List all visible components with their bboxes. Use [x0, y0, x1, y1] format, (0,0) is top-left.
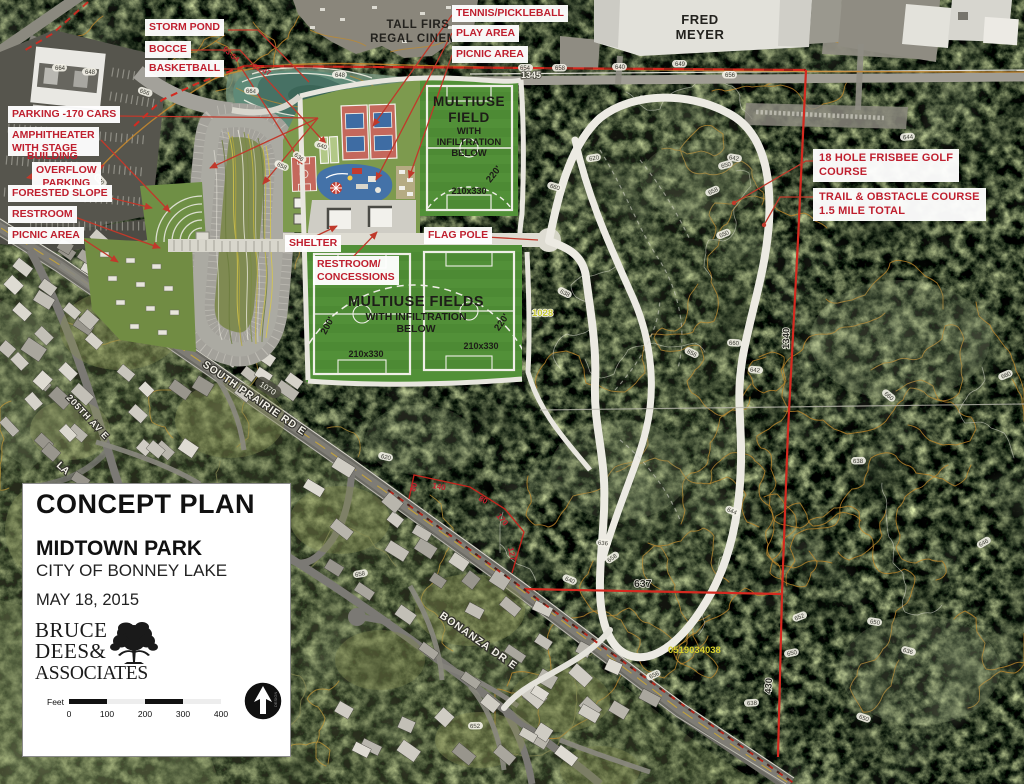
svg-text:636: 636 [598, 541, 609, 548]
svg-text:WITH: WITH [457, 126, 481, 137]
svg-text:200: 200 [138, 709, 152, 719]
svg-text:DESIGN: DESIGN [273, 692, 278, 707]
svg-text:MULTIUSE: MULTIUSE [433, 94, 505, 109]
svg-text:210x330: 210x330 [348, 349, 383, 359]
svg-text:640: 640 [615, 65, 626, 71]
svg-text:ASSOCIATES: ASSOCIATES [35, 663, 148, 684]
svg-text:664: 664 [246, 89, 257, 96]
svg-text:1028: 1028 [532, 308, 553, 319]
svg-text:637: 637 [634, 578, 652, 590]
svg-text:644: 644 [903, 135, 914, 142]
svg-text:BELOW: BELOW [396, 323, 435, 335]
svg-text:MEYER: MEYER [676, 27, 725, 42]
svg-text:MULTIUSE FIELDS: MULTIUSE FIELDS [348, 294, 484, 310]
svg-text:210x330: 210x330 [463, 341, 498, 351]
svg-text:1345: 1345 [521, 70, 541, 80]
svg-text:DEES&: DEES& [35, 639, 106, 663]
svg-text:642: 642 [750, 368, 761, 375]
svg-text:TALL FIRS: TALL FIRS [386, 19, 449, 31]
svg-text:648: 648 [85, 70, 96, 76]
svg-text:664: 664 [55, 66, 66, 72]
svg-text:648: 648 [335, 73, 346, 79]
svg-text:400: 400 [214, 709, 228, 719]
svg-text:0519034038: 0519034038 [668, 645, 721, 656]
svg-text:FRED: FRED [681, 12, 718, 27]
svg-text:652: 652 [470, 724, 481, 730]
svg-text:1340: 1340 [781, 328, 792, 349]
svg-text:BELOW: BELOW [451, 148, 486, 159]
svg-text:658: 658 [555, 66, 566, 72]
svg-text:INFILTRATION: INFILTRATION [437, 137, 502, 148]
svg-text:638: 638 [853, 459, 864, 465]
svg-text:0: 0 [67, 709, 72, 719]
svg-text:FIELD: FIELD [448, 110, 490, 125]
svg-text:638: 638 [747, 701, 758, 708]
svg-text:649: 649 [675, 62, 686, 68]
svg-text:WITH INFILTRATION: WITH INFILTRATION [365, 311, 466, 323]
svg-text:300: 300 [176, 709, 190, 719]
svg-text:Feet: Feet [47, 697, 65, 707]
svg-text:430: 430 [763, 678, 775, 695]
svg-text:656: 656 [725, 73, 736, 79]
svg-text:210x330: 210x330 [451, 186, 486, 196]
svg-text:660: 660 [729, 341, 740, 348]
svg-text:100: 100 [100, 709, 114, 719]
